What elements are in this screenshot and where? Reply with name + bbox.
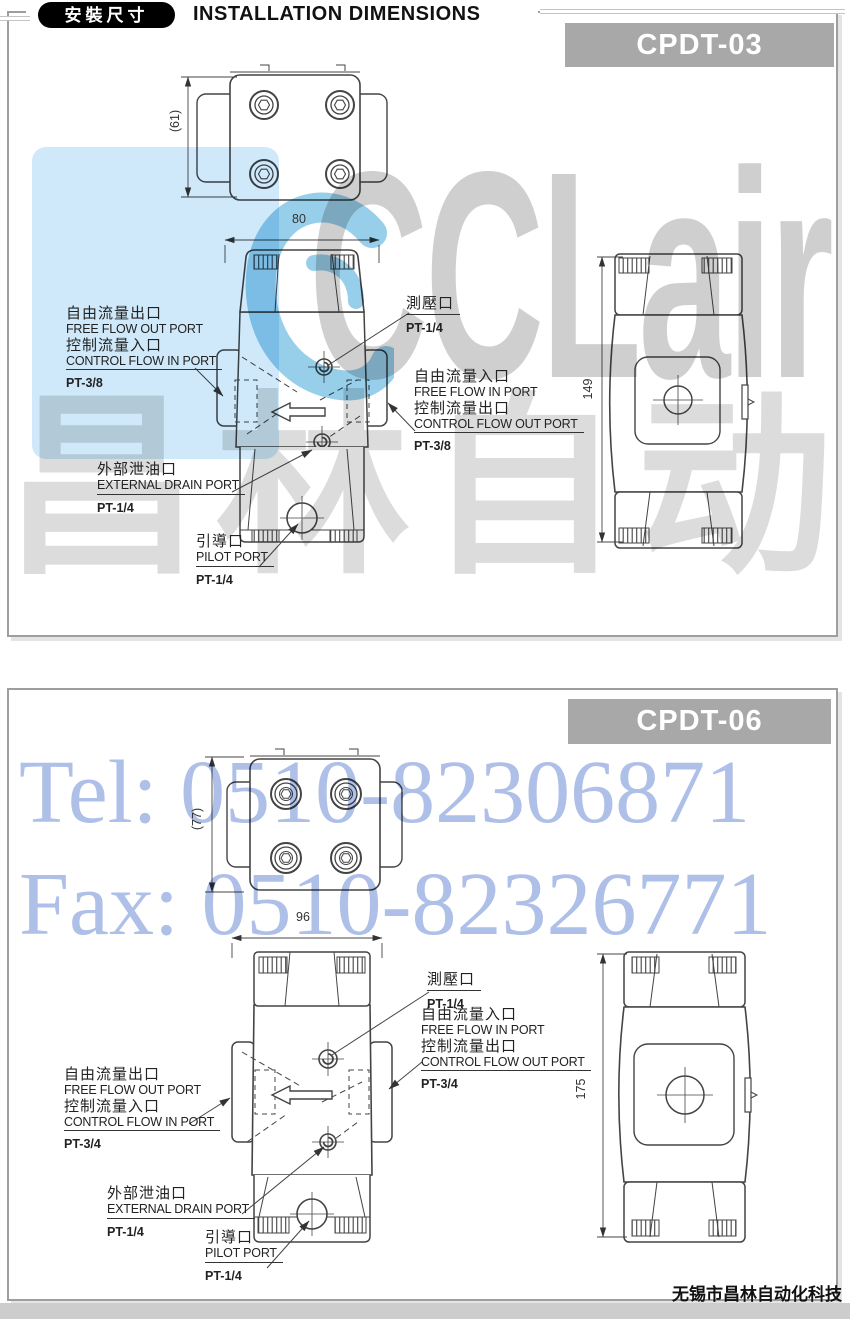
- top-view: [227, 749, 402, 890]
- port-size: PT-3/8: [414, 439, 451, 453]
- front-view: [232, 952, 392, 1242]
- label-en: PILOT PORT: [196, 551, 274, 567]
- label-en: FREE FLOW IN PORT: [414, 386, 537, 400]
- page-bottom-edge: [0, 1303, 850, 1319]
- top-view: [197, 65, 387, 200]
- dim-depth-label-cpdt06: (77): [190, 789, 204, 849]
- section-badge: 安裝尺寸: [38, 2, 175, 28]
- label-cn: 引導口: [196, 533, 244, 551]
- label-en: EXTERNAL DRAIN PORT: [97, 479, 245, 495]
- dim-width-label-cpdt03: 80: [284, 212, 314, 226]
- dim-width-label-cpdt06: 96: [288, 910, 318, 924]
- label-en: FREE FLOW OUT PORT: [66, 323, 203, 337]
- label-cn: 控制流量出口: [421, 1038, 517, 1056]
- label-en: CONTROL FLOW IN PORT: [66, 355, 222, 371]
- label-en: CONTROL FLOW OUT PORT: [414, 418, 584, 434]
- port-size: PT-1/4: [196, 573, 233, 587]
- side-view: [597, 952, 757, 1242]
- label-en: CONTROL FLOW IN PORT: [64, 1116, 220, 1132]
- port-label-pilot: 引導口 PILOT PORT PT-1/4: [196, 533, 274, 587]
- company-name: 无锡市昌林自动化科技: [672, 1280, 842, 1305]
- label-cn: 控制流量出口: [414, 400, 510, 418]
- port-label-gauge: 測壓口 PT-1/4: [427, 971, 481, 1011]
- label-en: PILOT PORT: [205, 1247, 283, 1263]
- dim-depth-label-cpdt03: (61): [168, 91, 182, 151]
- port-label-drain: 外部泄油口 EXTERNAL DRAIN PORT PT-1/4: [97, 461, 245, 515]
- label-cn: 控制流量入口: [66, 337, 162, 355]
- label-cn: 測壓口: [427, 971, 481, 991]
- label-cn: 自由流量出口: [66, 305, 162, 323]
- port-label-free-flow-out: 自由流量出口 FREE FLOW OUT PORT 控制流量入口 CONTROL…: [64, 1066, 220, 1151]
- label-cn: 外部泄油口: [107, 1185, 187, 1203]
- page-title: INSTALLATION DIMENSIONS: [193, 3, 480, 26]
- catalog-page: CCLair 昌林自动化 CPDT-03: [0, 0, 850, 1319]
- label-cn: 控制流量入口: [64, 1098, 160, 1116]
- label-en: FREE FLOW OUT PORT: [64, 1084, 201, 1098]
- label-cn: 自由流量入口: [414, 368, 510, 386]
- port-label-free-flow-in: 自由流量入口 FREE FLOW IN PORT 控制流量出口 CONTROL …: [414, 368, 584, 453]
- label-en: FREE FLOW IN PORT: [421, 1024, 544, 1038]
- port-size: PT-1/4: [406, 321, 443, 335]
- label-cn: 測壓口: [406, 295, 460, 315]
- port-label-free-flow-out: 自由流量出口 FREE FLOW OUT PORT 控制流量入口 CONTROL…: [66, 305, 222, 390]
- label-cn: 自由流量出口: [64, 1066, 160, 1084]
- label-cn: 自由流量入口: [421, 1006, 517, 1024]
- port-label-gauge: 測壓口 PT-1/4: [406, 295, 460, 335]
- label-cn: 外部泄油口: [97, 461, 177, 479]
- label-en: EXTERNAL DRAIN PORT: [107, 1203, 255, 1219]
- header-rule-right: [540, 9, 845, 14]
- port-size: PT-1/4: [97, 501, 134, 515]
- port-size: PT-1/4: [107, 1225, 144, 1239]
- port-size: PT-3/8: [66, 376, 103, 390]
- header-rule-left: [0, 16, 30, 21]
- port-size: PT-3/4: [64, 1137, 101, 1151]
- label-cn: 引導口: [205, 1229, 253, 1247]
- port-size: PT-1/4: [205, 1269, 242, 1283]
- port-label-free-flow-in: 自由流量入口 FREE FLOW IN PORT 控制流量出口 CONTROL …: [421, 1006, 591, 1091]
- label-en: CONTROL FLOW OUT PORT: [421, 1056, 591, 1072]
- model-title-cpdt-06: CPDT-06: [568, 699, 831, 744]
- model-title-cpdt-03: CPDT-03: [565, 23, 834, 67]
- port-size: PT-3/4: [421, 1077, 458, 1091]
- port-label-pilot: 引導口 PILOT PORT PT-1/4: [205, 1229, 283, 1283]
- side-view: [597, 254, 754, 548]
